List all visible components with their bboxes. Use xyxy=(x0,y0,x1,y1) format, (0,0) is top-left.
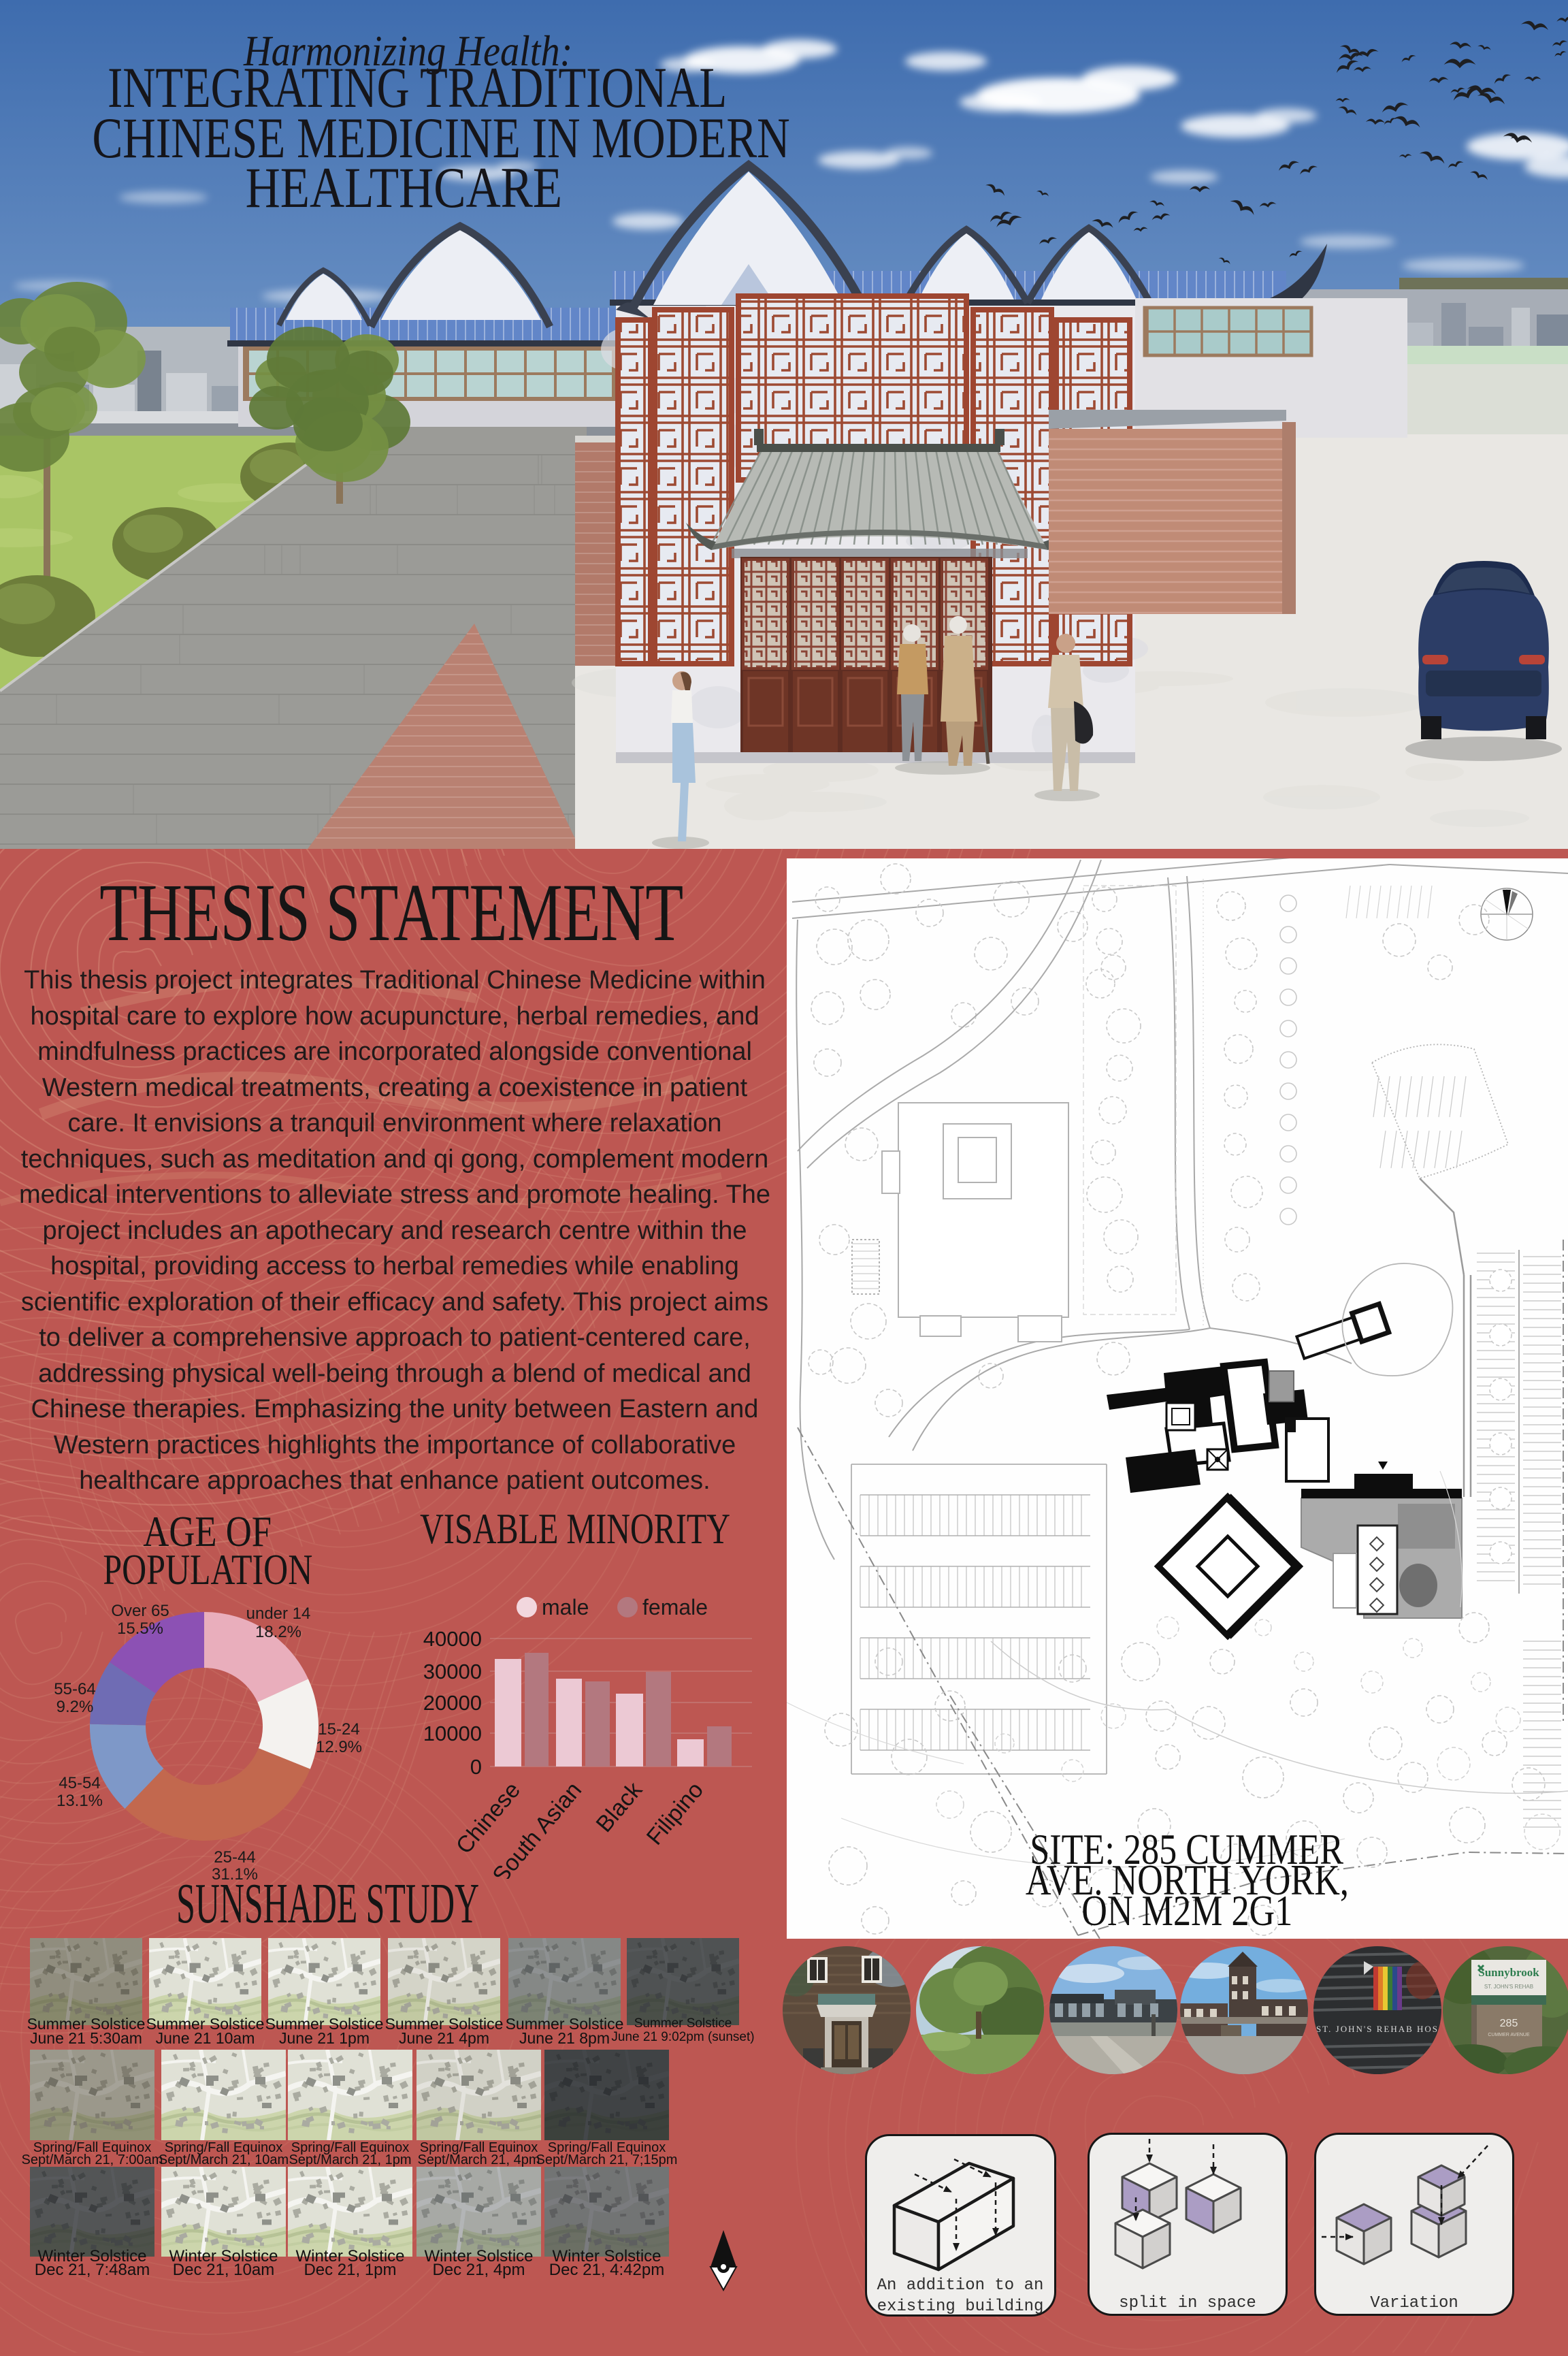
svg-text:under 14: under 14 xyxy=(246,1604,311,1623)
svg-text:0: 0 xyxy=(470,1755,482,1779)
svg-text:55-64: 55-64 xyxy=(54,1680,95,1698)
svg-text:male: male xyxy=(542,1595,589,1619)
svg-text:CUMMER AVENUE: CUMMER AVENUE xyxy=(1488,2033,1530,2037)
svg-text:existing building: existing building xyxy=(877,2297,1044,2314)
svg-text:30000: 30000 xyxy=(423,1660,482,1683)
svg-text:15-24: 15-24 xyxy=(318,1720,359,1739)
svg-text:split in space: split in space xyxy=(1119,2294,1256,2312)
svg-text:12.9%: 12.9% xyxy=(316,1738,362,1756)
svg-text:Sunnybrook: Sunnybrook xyxy=(1478,1966,1539,1979)
svg-text:Filipino: Filipino xyxy=(642,1777,708,1850)
svg-text:40000: 40000 xyxy=(423,1627,482,1651)
svg-text:10000: 10000 xyxy=(423,1722,482,1745)
svg-text:45-54: 45-54 xyxy=(59,1774,100,1792)
svg-text:285: 285 xyxy=(1500,2018,1518,2029)
svg-text:Black: Black xyxy=(591,1777,648,1837)
svg-text:ST. JOHN'S REHAB: ST. JOHN'S REHAB xyxy=(1484,1984,1533,1990)
svg-text:13.1%: 13.1% xyxy=(56,1792,103,1810)
svg-text:20000: 20000 xyxy=(423,1691,482,1715)
svg-text:18.2%: 18.2% xyxy=(255,1623,301,1641)
svg-text:female: female xyxy=(642,1595,708,1619)
svg-text:15.5%: 15.5% xyxy=(117,1619,163,1638)
svg-text:ST. JOHN'S REHAB HOS: ST. JOHN'S REHAB HOS xyxy=(1316,2024,1439,2034)
svg-text:An addition to an: An addition to an xyxy=(877,2276,1044,2295)
svg-text:9.2%: 9.2% xyxy=(56,1698,94,1716)
svg-text:Variation: Variation xyxy=(1370,2294,1458,2312)
svg-text:25-44: 25-44 xyxy=(214,1848,255,1867)
svg-text:Over 65: Over 65 xyxy=(111,1602,169,1620)
